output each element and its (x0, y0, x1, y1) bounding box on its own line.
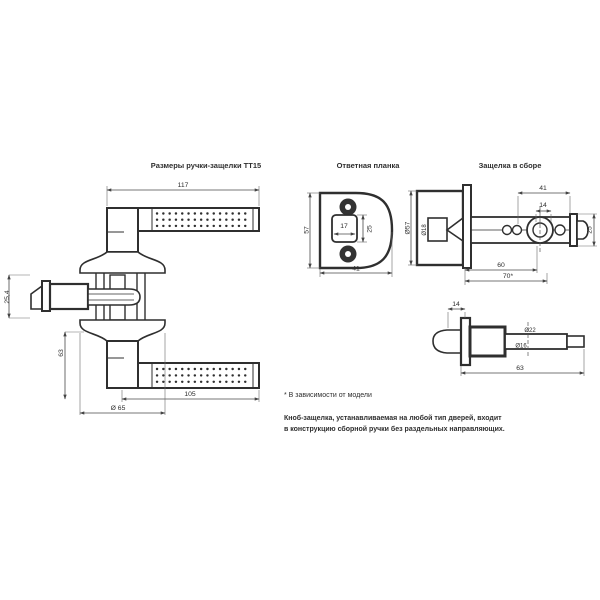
latch-bolt (433, 330, 461, 353)
asterisk-note: * В зависимости от модели (284, 392, 372, 399)
dim-bolt-throw-label: 14 (452, 301, 460, 308)
notes-block: * В зависимости от модели Кноб-защелка, … (284, 392, 505, 433)
rose-top-profile (80, 252, 165, 273)
view-latch-assembly: Защелка в сборе Ø57 Ø18 41 (405, 161, 598, 285)
dim-spindle-label: 14 (539, 202, 547, 209)
dim-backset-70: 70* (465, 273, 547, 284)
latch-tube (505, 334, 567, 349)
strike-view-title: Ответная планка (337, 161, 401, 170)
drawing-page: Размеры ручки-защелки ТТ15 117 (0, 0, 600, 600)
assembly-view-title: Защелка в сборе (479, 161, 542, 170)
note-line-1: Кноб-защелка, устанавливаемая на любой т… (284, 414, 502, 422)
dim-stem-diameter-label: Ø18 (422, 224, 428, 236)
lever-neck (107, 208, 138, 252)
dim-cutout-width-label: 17 (340, 223, 348, 230)
mechanism-pin (513, 226, 522, 235)
dim-lever-length-label: 117 (178, 182, 189, 189)
screw-hole-bottom-center (345, 251, 351, 257)
bottom-lever (107, 341, 259, 388)
faceplate-edge (570, 214, 577, 246)
mechanism-pin (503, 226, 512, 235)
dim-grip-length: 105 (122, 390, 259, 402)
dim-knob-diameter-label: Ø57 (405, 221, 412, 234)
note-line-2: в конструкцию сборной ручки без раздельн… (284, 425, 505, 433)
view-main-elevation: Размеры ручки-защелки ТТ15 117 (4, 161, 261, 415)
dim-plate-height: 57 (304, 193, 321, 268)
rose-bottom-profile (80, 320, 165, 341)
dim-height-label: 63 (58, 349, 65, 357)
view-latch-side: Ø22 Ø16 14 63 (433, 301, 584, 376)
dim-grip-length-label: 105 (184, 391, 196, 398)
latch-hub (88, 289, 140, 305)
latch-case (470, 327, 505, 356)
dim-plate-height-label: 57 (304, 226, 311, 234)
screw-hole-top-center (345, 204, 351, 210)
mechanism-pin (555, 225, 565, 235)
dim-latch-length-label: 63 (516, 365, 524, 372)
view-strike-plate: Ответная планка 17 25 57 (304, 161, 401, 277)
dim-latch-case-label: 25,4 (4, 290, 11, 303)
latch-faceplate (42, 281, 50, 311)
dim-faceplate-width-label: 25 (587, 226, 594, 234)
dim-knob-diameter: Ø57 (405, 191, 418, 265)
top-lever (107, 208, 259, 252)
rose-plate-edge (463, 185, 471, 268)
latch-case (50, 284, 88, 309)
dim-backset-60: 60 (465, 246, 537, 285)
main-view-title: Размеры ручки-защелки ТТ15 (151, 161, 261, 170)
dim-latch-case: 25,4 (4, 275, 30, 318)
dim-backset-60-label: 60 (497, 262, 505, 269)
dim-plate-width-label: 41 (352, 266, 360, 273)
lever-neck (107, 341, 138, 388)
dim-backset-70-label: 70* (503, 273, 514, 280)
dim-hub-length-label: 41 (539, 185, 547, 192)
technical-drawing: Размеры ручки-защелки ТТ15 117 (0, 0, 600, 600)
latch-tube-end (567, 336, 584, 347)
dim-tube-lower-label: Ø16 (515, 344, 527, 350)
knob-stem (428, 218, 447, 241)
dim-rose-diameter-label: Ø 65 (111, 405, 126, 412)
latch-bolt (31, 286, 42, 309)
dim-tube-upper-label: Ø22 (524, 328, 536, 334)
dim-cutout-height-label: 25 (367, 225, 374, 233)
dim-lever-length: 117 (107, 182, 259, 206)
